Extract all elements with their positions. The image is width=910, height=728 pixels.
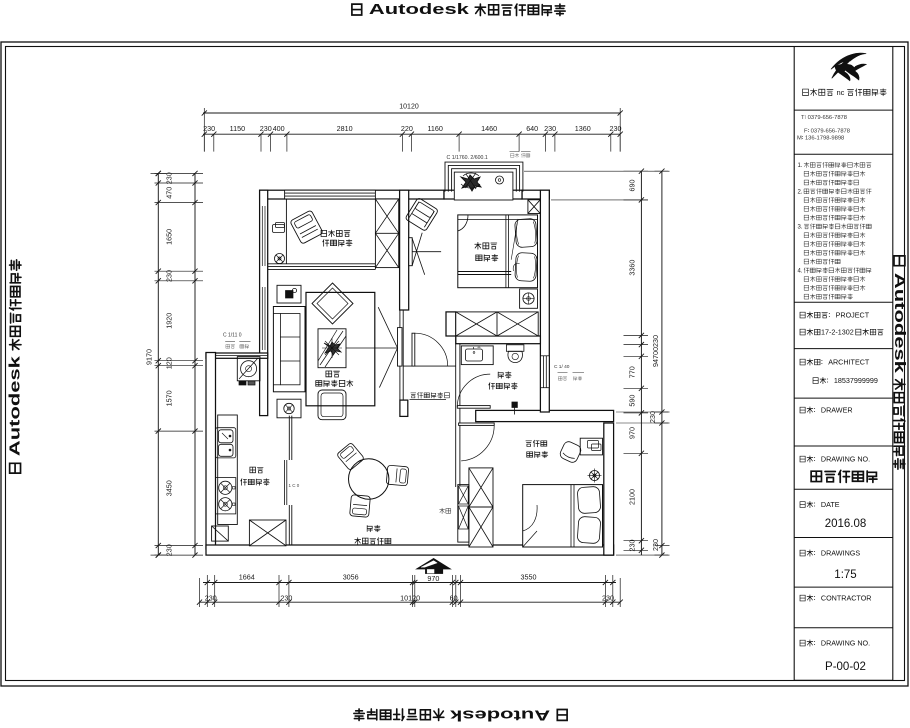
svg-text:230: 230 (610, 124, 622, 133)
svg-text:∶: ∶ (827, 376, 829, 385)
svg-text:230: 230 (651, 539, 660, 551)
svg-text:60: 60 (450, 594, 458, 603)
svg-text:10120: 10120 (399, 104, 419, 111)
svg-text:Autodesk: Autodesk (891, 273, 907, 374)
svg-text:2100: 2100 (628, 489, 637, 505)
svg-text:PROJECT: PROJECT (836, 311, 870, 320)
svg-text:18537999999: 18537999999 (834, 376, 878, 385)
svg-text:120: 120 (165, 357, 174, 369)
svg-text:470: 470 (165, 187, 174, 199)
svg-text:DATE: DATE (821, 500, 840, 509)
svg-text:DRAWING NO.: DRAWING NO. (821, 639, 870, 648)
svg-text:640: 640 (526, 124, 538, 133)
svg-text:230: 230 (260, 124, 272, 133)
svg-text:∶: ∶ (828, 311, 830, 320)
svg-text:10120: 10120 (400, 594, 420, 603)
svg-text:1 C 0: 1 C 0 (289, 483, 300, 488)
svg-text:3.: 3. (798, 225, 803, 231)
svg-text:230: 230 (602, 594, 614, 603)
svg-text:9170: 9170 (145, 349, 154, 365)
svg-text:Autodesk: Autodesk (369, 2, 470, 18)
svg-text:220: 220 (401, 124, 413, 133)
svg-text:F∶ 0379-656-7878: F∶ 0379-656-7878 (804, 129, 850, 135)
svg-text:∶: ∶ (814, 594, 816, 603)
svg-text:1664: 1664 (239, 573, 255, 582)
svg-text:M∶ 136-1798-9898: M∶ 136-1798-9898 (797, 136, 844, 142)
svg-text:DRAWER: DRAWER (821, 406, 853, 415)
svg-text:∶: ∶ (814, 455, 816, 464)
svg-text:3056: 3056 (343, 573, 359, 582)
svg-text:1570: 1570 (165, 390, 174, 406)
svg-text:970: 970 (628, 427, 637, 439)
svg-text:590: 590 (628, 395, 637, 407)
svg-text:3360: 3360 (628, 260, 637, 276)
svg-text:2.: 2. (798, 189, 803, 195)
svg-text:17-2-1302: 17-2-1302 (821, 328, 854, 337)
svg-text:ARCHITECT: ARCHITECT (828, 358, 870, 367)
svg-text:∶: ∶ (821, 358, 823, 367)
svg-text:P-00-02: P-00-02 (825, 661, 866, 673)
svg-text:∶: ∶ (814, 500, 816, 509)
svg-text:400: 400 (273, 124, 285, 133)
svg-text:970: 970 (427, 574, 439, 583)
svg-text:1920: 1920 (165, 313, 174, 329)
svg-text:1460: 1460 (481, 124, 497, 133)
svg-text:230: 230 (280, 594, 292, 603)
svg-text:230: 230 (628, 540, 637, 552)
svg-text:230: 230 (165, 270, 174, 282)
svg-text:94700230: 94700230 (651, 335, 660, 367)
svg-text:C 1/11 0: C 1/11 0 (223, 333, 242, 339)
svg-text:DRAWINGS: DRAWINGS (821, 549, 860, 558)
svg-text:230: 230 (648, 411, 657, 423)
svg-text:∶: ∶ (814, 549, 816, 558)
svg-text:∶: ∶ (814, 406, 816, 415)
svg-text:2810: 2810 (337, 124, 353, 133)
svg-text:1:75: 1:75 (834, 569, 856, 581)
svg-text:770: 770 (628, 366, 637, 378)
svg-text:Autodesk: Autodesk (449, 707, 550, 723)
svg-text:230: 230 (544, 124, 556, 133)
svg-text:230: 230 (165, 172, 174, 184)
svg-text:3450: 3450 (165, 480, 174, 496)
svg-text:DRAWING NO.: DRAWING NO. (821, 455, 870, 464)
svg-text:230: 230 (203, 124, 215, 133)
svg-text:1.: 1. (798, 163, 803, 169)
svg-text:1150: 1150 (230, 124, 245, 133)
svg-text:3550: 3550 (521, 573, 537, 582)
svg-text:230: 230 (165, 544, 174, 556)
svg-text:C 1/1760. 2/600.1: C 1/1760. 2/600.1 (447, 155, 488, 161)
svg-text:nc: nc (837, 88, 845, 97)
svg-text:∶: ∶ (814, 639, 816, 648)
svg-text:2016.08: 2016.08 (825, 518, 867, 530)
svg-text:Autodesk: Autodesk (8, 355, 24, 456)
svg-text:1360: 1360 (575, 124, 591, 133)
svg-text:1160: 1160 (427, 124, 442, 133)
svg-text:T∶ 0379-656-7878: T∶ 0379-656-7878 (801, 115, 847, 121)
svg-text:4.: 4. (798, 268, 803, 274)
svg-text:CONTRACTOR: CONTRACTOR (821, 594, 872, 603)
svg-text:C 1/ 40: C 1/ 40 (554, 364, 570, 370)
svg-text:1650: 1650 (165, 229, 174, 245)
svg-text:230: 230 (205, 594, 217, 603)
svg-text:690: 690 (628, 180, 637, 192)
